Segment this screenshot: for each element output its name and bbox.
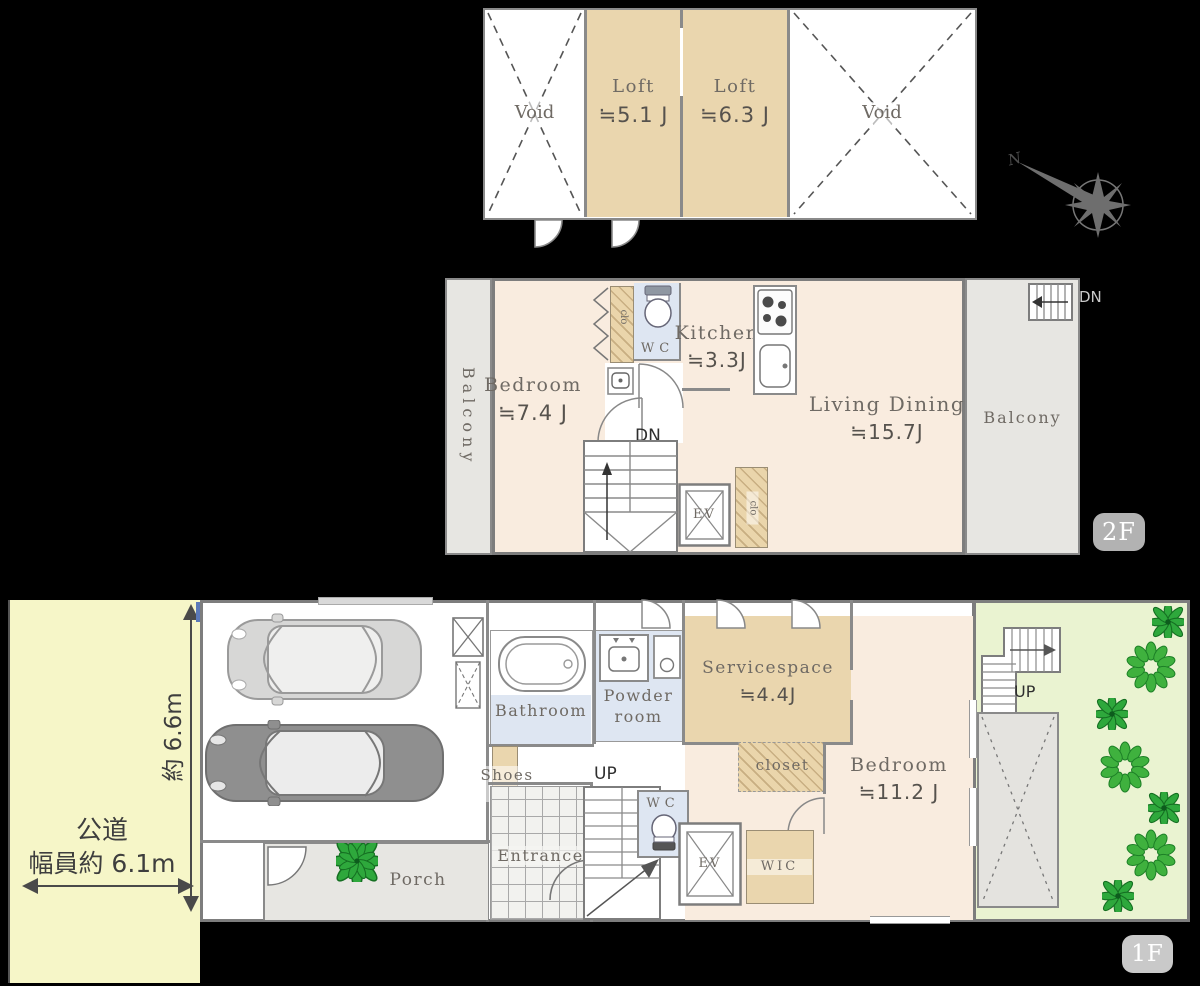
shrub-icon bbox=[1096, 698, 1128, 730]
garage-door-top bbox=[318, 597, 433, 605]
stairs-garden-icon bbox=[980, 626, 1062, 716]
room-label: Servicespace bbox=[688, 658, 848, 678]
loft-room-area: ≒6.3 J bbox=[683, 102, 787, 128]
room-label: Bedroom bbox=[468, 374, 598, 397]
room-label: room bbox=[596, 707, 681, 726]
plant-icon bbox=[336, 840, 378, 882]
closet-2f-upper: clo bbox=[610, 286, 634, 363]
loft-room-label: Loft bbox=[683, 76, 787, 98]
void-x-icon bbox=[979, 714, 1057, 906]
pillar-icon bbox=[452, 617, 484, 657]
road-width-arrow-icon bbox=[20, 874, 196, 898]
loft-room-area: ≒5.1 J bbox=[587, 102, 680, 128]
wall bbox=[682, 388, 730, 391]
door-arc-icon bbox=[640, 598, 676, 630]
loft-void-left: Void bbox=[485, 10, 584, 217]
door-arc-icon bbox=[715, 598, 751, 630]
floor2-plan: Balcony Bedroom ≒7.4 J clo WC bbox=[445, 278, 1080, 555]
wall bbox=[850, 700, 853, 745]
car-icon bbox=[222, 612, 427, 707]
elevator-label: EV bbox=[678, 507, 731, 523]
sink-icon bbox=[607, 367, 634, 395]
room-label: Bedroom bbox=[833, 754, 965, 777]
door-arc-icon bbox=[533, 219, 563, 249]
stairs-down-icon bbox=[583, 440, 678, 553]
wall bbox=[850, 600, 853, 670]
wall bbox=[823, 742, 826, 794]
stairs-ext-down-label: DN bbox=[1079, 288, 1102, 306]
floor2-badge: 2F bbox=[1093, 513, 1145, 551]
compass: N bbox=[1008, 150, 1158, 245]
floor1-badge: 1F bbox=[1122, 935, 1173, 973]
toilet-icon bbox=[648, 812, 680, 856]
shrub-icon bbox=[1148, 792, 1180, 824]
pillar-icon bbox=[455, 661, 481, 709]
room-label: Powder bbox=[596, 686, 681, 705]
loft-room-1: Loft ≒5.1 J bbox=[587, 10, 680, 217]
folding-door-icon bbox=[591, 286, 610, 364]
closet-label: closet bbox=[740, 756, 825, 774]
room-label: Living Dining bbox=[807, 392, 967, 416]
balcony-label: Balcony bbox=[965, 408, 1080, 427]
wall bbox=[593, 600, 596, 744]
loft-room-label: Loft bbox=[587, 76, 680, 98]
door-arc-icon bbox=[610, 219, 640, 249]
elevator-1f: EV bbox=[678, 822, 742, 906]
closet-label: clo bbox=[747, 492, 759, 525]
door-arc-icon bbox=[266, 845, 310, 903]
room-area: ≒4.4J bbox=[688, 684, 848, 708]
loft-plan: Void Loft ≒5.1 J Loft ≒6.3 J Void bbox=[483, 8, 977, 220]
powder-room-1f: Powder room bbox=[595, 630, 683, 742]
room-label: Bathroom bbox=[491, 701, 591, 720]
door-arc-icon bbox=[790, 598, 826, 630]
bedroom-2f: Bedroom ≒7.4 J bbox=[468, 374, 598, 426]
void-label: Void bbox=[485, 102, 584, 124]
closet-label: clo bbox=[617, 305, 629, 329]
site-depth-label: 約 6.6m bbox=[154, 682, 180, 792]
loft-void-right: Void bbox=[790, 10, 974, 217]
wall bbox=[682, 600, 685, 744]
room-area: ≒15.7J bbox=[807, 420, 967, 445]
window bbox=[969, 788, 977, 846]
terrace-void bbox=[977, 712, 1059, 908]
tree-icon bbox=[1098, 740, 1152, 794]
road-name-label: 公道 bbox=[12, 810, 192, 847]
stairs-up-garden-label: UP bbox=[1014, 682, 1054, 701]
elevator-2f: EV bbox=[678, 483, 731, 547]
wc-label: WC bbox=[639, 796, 687, 812]
wall bbox=[488, 782, 592, 785]
shrub-icon bbox=[1152, 606, 1184, 638]
window bbox=[969, 700, 977, 758]
loft-room-2: Loft ≒6.3 J bbox=[683, 10, 787, 217]
kitchen-counter-icon bbox=[753, 285, 797, 395]
washer-icon bbox=[653, 635, 681, 679]
floor-plan-canvas: Void Loft ≒5.1 J Loft ≒6.3 J Void N bbox=[0, 0, 1200, 986]
car-icon bbox=[202, 720, 447, 806]
bathtub-icon bbox=[497, 635, 587, 693]
wic-label: WIC bbox=[747, 859, 812, 875]
tree-icon bbox=[1124, 828, 1178, 882]
vanity-sink-icon bbox=[599, 634, 649, 682]
shrub-icon bbox=[1102, 880, 1134, 912]
window bbox=[870, 916, 950, 924]
living-dining-2f: Living Dining ≒15.7J bbox=[807, 392, 967, 445]
void-label: Void bbox=[790, 102, 974, 124]
servicespace-1f bbox=[685, 616, 851, 744]
wall bbox=[200, 840, 490, 843]
bathroom-1f: Bathroom bbox=[490, 630, 593, 746]
wic-1f: WIC bbox=[746, 830, 814, 904]
room-area: ≒7.4 J bbox=[468, 400, 598, 426]
elevator-label: EV bbox=[678, 856, 742, 872]
compass-icon bbox=[1008, 150, 1158, 245]
stairs-up-label: UP bbox=[594, 764, 630, 784]
tree-icon bbox=[1124, 640, 1178, 694]
closet-2f-lower: clo bbox=[735, 467, 768, 548]
room-label: Porch bbox=[368, 870, 468, 890]
stairs-ext-down-icon bbox=[1028, 283, 1073, 321]
room-area: ≒11.2 J bbox=[833, 780, 965, 805]
